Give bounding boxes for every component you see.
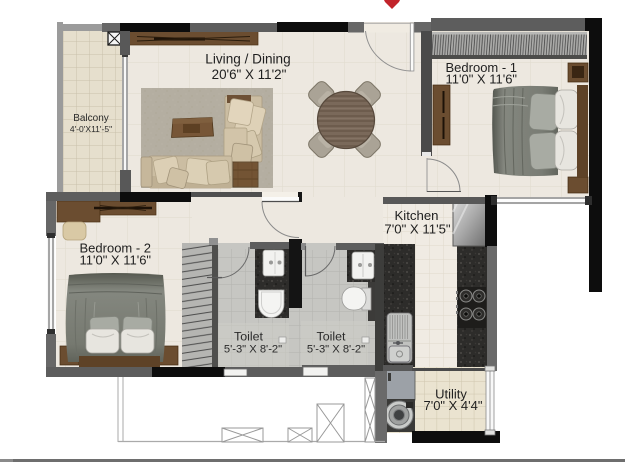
svg-text:Toilet: Toilet: [317, 330, 346, 344]
svg-text:5'-3" X 8'-2": 5'-3" X 8'-2": [224, 344, 282, 356]
svg-text:Balcony: Balcony: [73, 113, 109, 124]
svg-text:11'0" X 11'6": 11'0" X 11'6": [80, 253, 152, 268]
svg-text:11'0" X 11'6": 11'0" X 11'6": [446, 72, 518, 87]
svg-text:Living / Dining: Living / Dining: [205, 52, 290, 67]
svg-text:4'-0'X11'-5": 4'-0'X11'-5": [70, 124, 112, 134]
svg-text:5'-3" X 8'-2": 5'-3" X 8'-2": [307, 344, 365, 356]
svg-text:7'0" X 4'4": 7'0" X 4'4": [423, 398, 482, 413]
svg-text:Toilet: Toilet: [234, 330, 263, 344]
svg-text:20'6" X 11'2": 20'6" X 11'2": [212, 67, 287, 82]
svg-text:7'0" X 11'5": 7'0" X 11'5": [384, 222, 451, 237]
